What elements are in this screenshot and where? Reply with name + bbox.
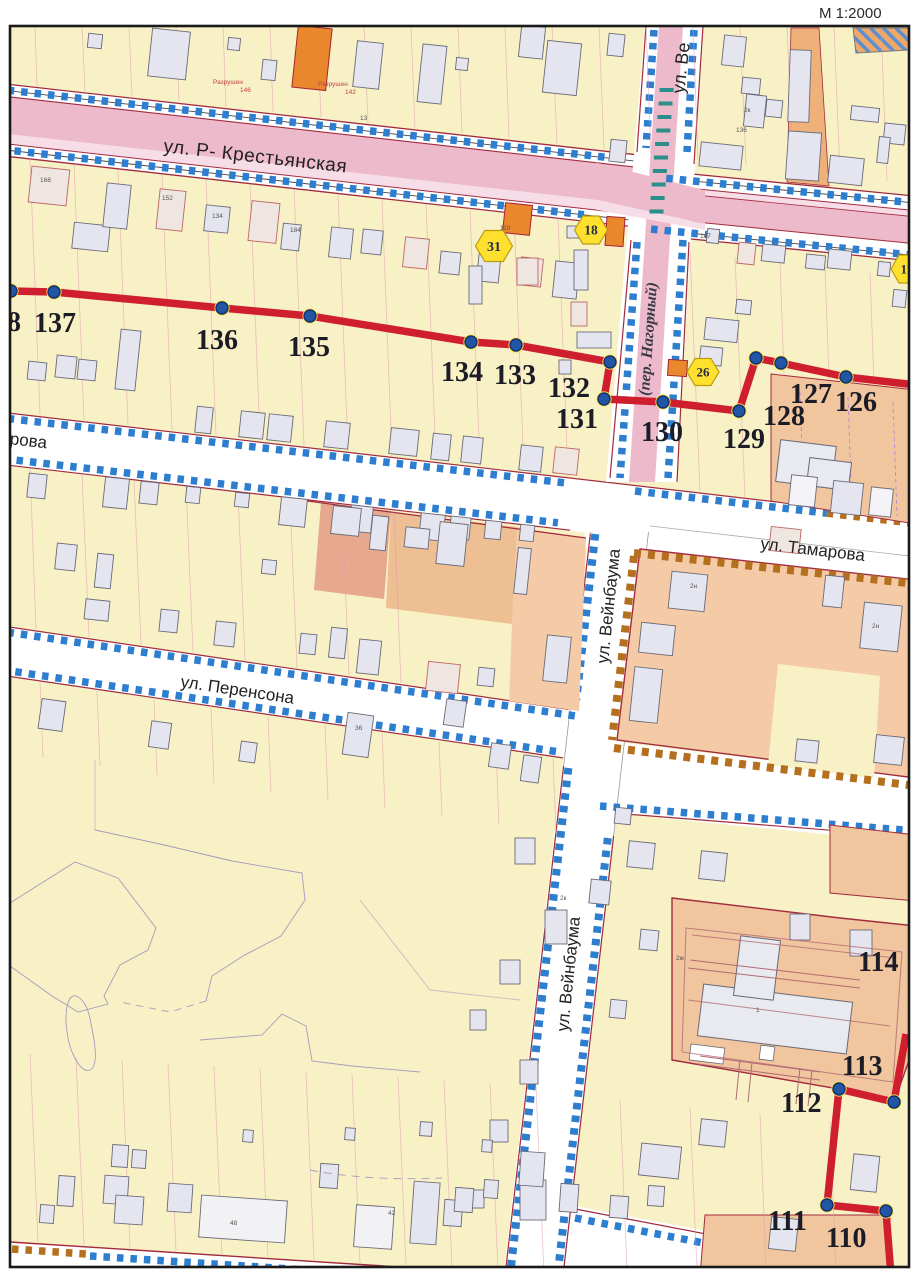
svg-text:132: 132 (548, 373, 590, 404)
svg-text:126: 126 (835, 387, 877, 418)
svg-text:17: 17 (648, 315, 656, 322)
svg-text:Разрушен: Разрушен (213, 79, 243, 86)
svg-text:112: 112 (781, 1088, 821, 1119)
svg-text:2ж: 2ж (676, 955, 685, 962)
svg-text:31: 31 (487, 240, 501, 255)
svg-text:42: 42 (388, 1210, 396, 1217)
svg-text:Разрушен: Разрушен (318, 81, 348, 88)
svg-text:133: 133 (494, 360, 536, 391)
svg-text:152: 152 (162, 195, 173, 202)
svg-text:13: 13 (360, 115, 368, 122)
svg-text:130: 130 (641, 417, 683, 448)
svg-text:134: 134 (441, 357, 483, 388)
svg-text:136: 136 (196, 325, 238, 356)
svg-text:184: 184 (290, 227, 301, 234)
svg-text:М 1:2000: М 1:2000 (819, 5, 882, 22)
svg-text:26: 26 (697, 365, 711, 380)
svg-text:1: 1 (756, 1007, 760, 1014)
svg-text:142: 142 (345, 89, 356, 96)
svg-text:146: 146 (240, 87, 251, 94)
svg-text:131: 131 (556, 404, 598, 435)
svg-text:113: 113 (842, 1051, 882, 1082)
svg-text:134: 134 (212, 213, 223, 220)
svg-text:114: 114 (858, 947, 898, 978)
svg-text:2н: 2н (690, 583, 698, 590)
svg-text:110: 110 (500, 225, 511, 232)
svg-text:147: 147 (700, 233, 711, 240)
svg-text:2к: 2к (744, 107, 751, 114)
svg-text:135: 135 (288, 332, 330, 363)
svg-text:129: 129 (723, 424, 765, 455)
svg-text:137: 137 (34, 308, 76, 339)
svg-text:136: 136 (736, 127, 747, 134)
svg-text:36: 36 (355, 725, 363, 732)
svg-text:168: 168 (40, 177, 51, 184)
svg-text:18: 18 (584, 223, 598, 238)
svg-text:48: 48 (230, 1220, 238, 1227)
svg-text:2к: 2к (560, 895, 567, 902)
svg-text:2н: 2н (872, 623, 880, 630)
svg-text:127: 127 (790, 379, 832, 410)
svg-text:110: 110 (826, 1223, 866, 1254)
svg-text:111: 111 (768, 1206, 807, 1237)
